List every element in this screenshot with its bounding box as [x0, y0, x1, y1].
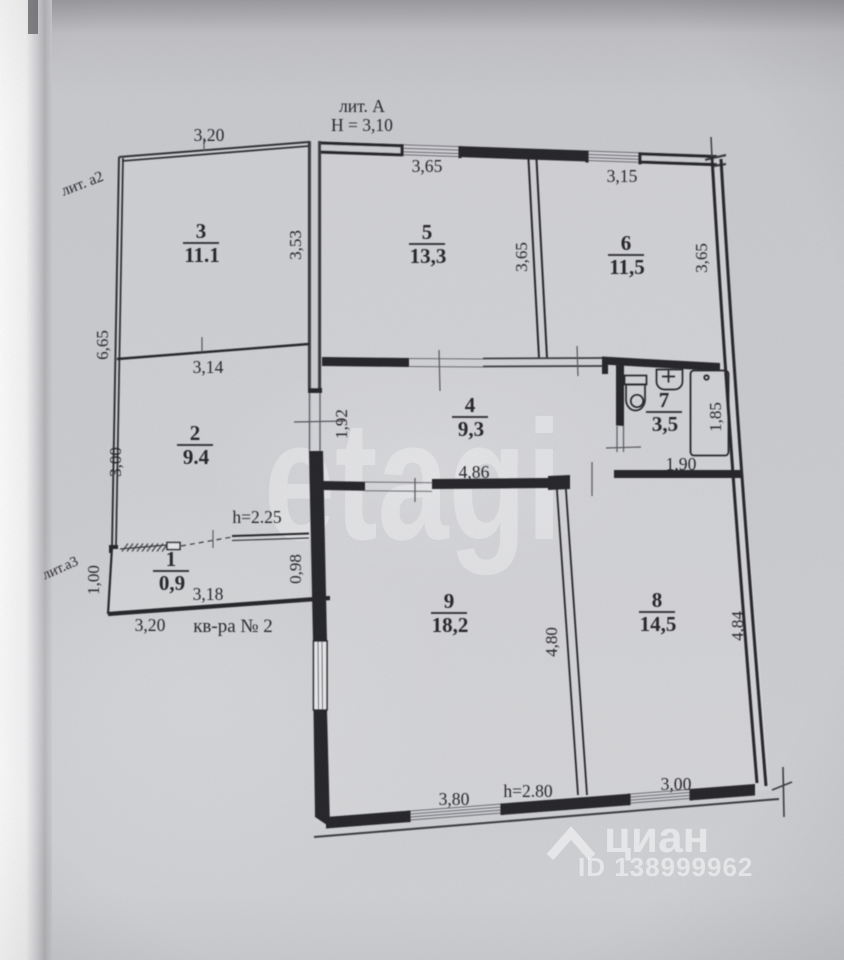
svg-text:ID 138999962: ID 138999962 [578, 852, 753, 882]
